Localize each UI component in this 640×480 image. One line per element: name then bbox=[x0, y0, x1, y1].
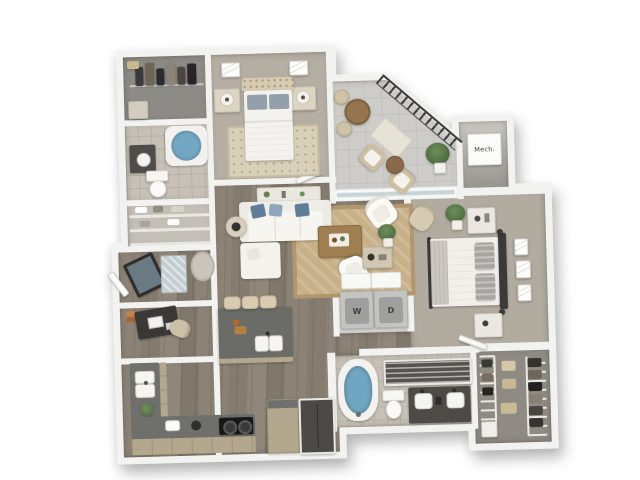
table-lamp bbox=[231, 222, 240, 231]
hanging-clothes bbox=[527, 358, 541, 367]
console-table bbox=[362, 246, 393, 269]
plant-pot bbox=[434, 162, 446, 173]
hanging-clothes bbox=[482, 387, 493, 395]
linens bbox=[171, 206, 184, 212]
hanging-clothes bbox=[135, 67, 144, 86]
bed2-mattress bbox=[244, 90, 294, 161]
vanity-sink bbox=[414, 393, 432, 409]
washer-front: W bbox=[345, 298, 370, 325]
hanging-clothes bbox=[528, 382, 542, 391]
linens bbox=[135, 207, 147, 213]
bar-stool bbox=[242, 296, 259, 309]
doormat bbox=[160, 255, 187, 294]
pillow bbox=[247, 94, 267, 110]
fridge-door-split bbox=[317, 404, 319, 448]
nightstand bbox=[467, 207, 496, 234]
plant-pot bbox=[383, 238, 393, 247]
laptop bbox=[147, 316, 164, 329]
vanity-sink bbox=[446, 392, 464, 408]
pillow bbox=[269, 94, 289, 110]
floorplan: Mech. W D bbox=[0, 0, 640, 480]
walk-in-shower bbox=[383, 358, 472, 386]
decor bbox=[340, 236, 345, 241]
decor bbox=[332, 238, 337, 243]
bath-water bbox=[171, 130, 202, 161]
hanging-clothes bbox=[529, 406, 543, 415]
faucet bbox=[144, 381, 148, 385]
tub-water bbox=[344, 366, 373, 415]
dryer: D bbox=[373, 290, 408, 329]
closet-dresser bbox=[128, 101, 148, 120]
toaster bbox=[165, 420, 180, 431]
island-sink bbox=[255, 335, 269, 351]
linens bbox=[139, 221, 150, 227]
console-plant bbox=[264, 191, 270, 197]
burner bbox=[238, 420, 252, 434]
vanity-accessory bbox=[435, 397, 441, 405]
accent-pillow bbox=[250, 203, 266, 219]
bread-board bbox=[234, 326, 246, 334]
laundry-cabinet bbox=[371, 272, 401, 289]
console-lamp bbox=[367, 253, 374, 260]
island-sink bbox=[269, 335, 283, 351]
hanging-clothes bbox=[528, 394, 542, 403]
nightstand bbox=[474, 313, 503, 338]
bathroom-vanity bbox=[129, 145, 156, 174]
burner bbox=[223, 420, 237, 434]
vanity-sink bbox=[137, 153, 151, 167]
striped-pillow bbox=[475, 273, 496, 302]
knit-throw bbox=[430, 240, 449, 304]
hamper bbox=[481, 421, 497, 437]
laundry-cabinet bbox=[341, 273, 371, 290]
wall-art bbox=[517, 284, 531, 301]
island-faucet bbox=[266, 331, 270, 335]
linens bbox=[167, 219, 179, 225]
plant-pot bbox=[452, 220, 463, 230]
duvet-texture bbox=[247, 123, 292, 158]
wall-art bbox=[221, 62, 240, 78]
seat-seam bbox=[274, 213, 276, 239]
striped-pillow bbox=[474, 242, 495, 271]
cooktop bbox=[219, 417, 253, 435]
chaise-pillow bbox=[246, 247, 261, 261]
console-vase bbox=[282, 191, 286, 198]
storage-box bbox=[501, 403, 517, 414]
mech-label: Mech. bbox=[474, 145, 495, 154]
tub-faucet bbox=[356, 412, 361, 417]
faucet bbox=[420, 389, 424, 393]
storage-box bbox=[127, 61, 139, 69]
hanging-clothes bbox=[528, 370, 542, 379]
accent-pillow bbox=[294, 203, 309, 218]
console-plant bbox=[300, 191, 305, 196]
hanging-clothes bbox=[166, 63, 176, 85]
wall-art bbox=[514, 238, 528, 255]
soaking-tub bbox=[337, 358, 379, 421]
bathtub bbox=[165, 125, 208, 166]
coffee-table bbox=[318, 225, 363, 258]
dryer-front: D bbox=[379, 297, 404, 324]
storage-box bbox=[502, 379, 516, 389]
refrigerator bbox=[298, 398, 336, 455]
floorplan-stage: Mech. W D bbox=[0, 0, 640, 480]
chair-cushion bbox=[363, 148, 382, 167]
faucet bbox=[452, 388, 456, 392]
bar-stool bbox=[224, 296, 241, 309]
double-vanity bbox=[408, 386, 471, 424]
hanging-clothes bbox=[529, 418, 543, 427]
nightstand-decor bbox=[482, 320, 488, 326]
nightstand-decor bbox=[484, 213, 489, 222]
hanging-clothes bbox=[177, 67, 185, 85]
nightstand-decor bbox=[474, 216, 480, 222]
kitchen-sink bbox=[135, 384, 155, 399]
sofa-chaise bbox=[240, 242, 281, 279]
fruit bbox=[233, 319, 239, 325]
kitchen-island bbox=[218, 307, 294, 364]
tall-cabinet bbox=[266, 399, 299, 454]
cabinet-top bbox=[267, 400, 297, 409]
hanging-clothes bbox=[481, 359, 492, 367]
hanging-clothes bbox=[187, 63, 197, 84]
hanging-clothes bbox=[145, 63, 155, 86]
accent-pillow bbox=[269, 204, 283, 217]
dryer-label: D bbox=[388, 305, 395, 314]
washer: W bbox=[339, 291, 374, 330]
washer-label: W bbox=[352, 306, 361, 315]
mechanical-unit: Mech. bbox=[467, 133, 502, 166]
wall-art bbox=[289, 60, 308, 76]
hanging-clothes bbox=[156, 68, 164, 85]
linens bbox=[153, 205, 163, 212]
hanging-clothes bbox=[482, 373, 493, 381]
master-bed-mattress bbox=[430, 237, 500, 307]
bar-stool bbox=[260, 295, 277, 308]
decor bbox=[378, 254, 386, 260]
wall-art bbox=[516, 260, 531, 278]
chair-cushion bbox=[371, 203, 393, 225]
storage-box bbox=[501, 361, 515, 371]
serving-tray bbox=[329, 233, 349, 247]
